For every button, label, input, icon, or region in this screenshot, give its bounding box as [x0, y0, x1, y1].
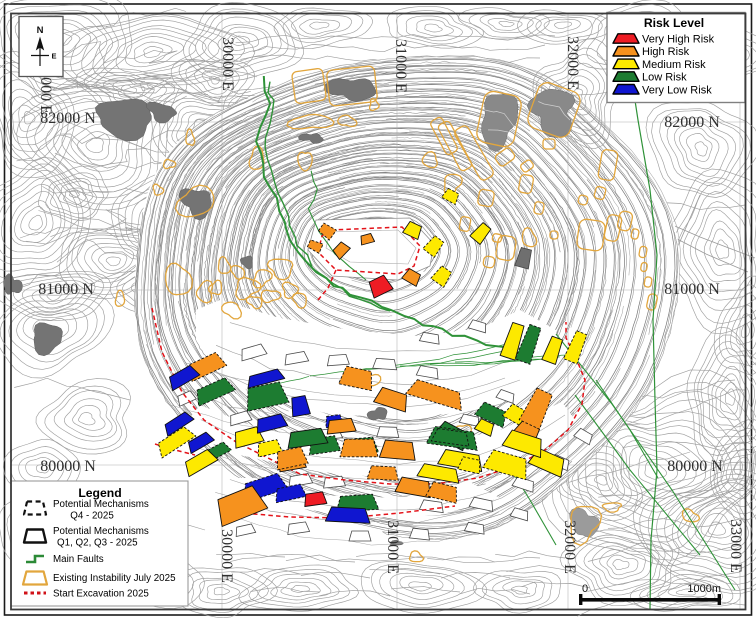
svg-text:32000 E: 32000 E [564, 36, 581, 90]
svg-text:80000 N: 80000 N [40, 458, 96, 475]
svg-text:81000 N: 81000 N [38, 281, 94, 298]
svg-text:31000 E: 31000 E [392, 39, 409, 93]
svg-text:Risk Level: Risk Level [644, 16, 704, 30]
svg-text:31000 E: 31000 E [384, 520, 401, 574]
svg-text:Low Risk: Low Risk [642, 72, 687, 84]
svg-text:High Risk: High Risk [642, 46, 690, 58]
svg-text:33000 E: 33000 E [727, 519, 744, 573]
svg-text:Very High Risk: Very High Risk [642, 34, 715, 46]
svg-text:81000 N: 81000 N [664, 281, 720, 298]
svg-text:0: 0 [582, 583, 588, 595]
svg-text:Q4 - 2025: Q4 - 2025 [70, 511, 114, 522]
svg-text:Very Low Risk: Very Low Risk [642, 84, 712, 96]
svg-text:Existing Instability July 2025: Existing Instability July 2025 [53, 573, 176, 584]
svg-text:Potential Mechanisms: Potential Mechanisms [53, 526, 149, 537]
svg-text:E: E [52, 52, 57, 61]
svg-text:32000 E: 32000 E [561, 520, 578, 574]
svg-text:Potential Mechanisms: Potential Mechanisms [53, 499, 149, 510]
svg-text:80000 N: 80000 N [667, 458, 723, 475]
svg-text:1000m: 1000m [687, 583, 721, 595]
svg-text:30000 E: 30000 E [219, 37, 236, 91]
svg-text:Q1, Q2, Q3 - 2025: Q1, Q2, Q3 - 2025 [57, 538, 138, 549]
svg-text:30000 E: 30000 E [218, 529, 235, 583]
svg-text:82000 N: 82000 N [664, 114, 720, 131]
svg-text:Medium Risk: Medium Risk [642, 59, 706, 71]
svg-text:Legend: Legend [78, 486, 121, 500]
svg-text:Main Faults: Main Faults [53, 554, 104, 565]
svg-text:Start Excavation 2025: Start Excavation 2025 [53, 589, 149, 600]
svg-text:N: N [37, 25, 44, 36]
